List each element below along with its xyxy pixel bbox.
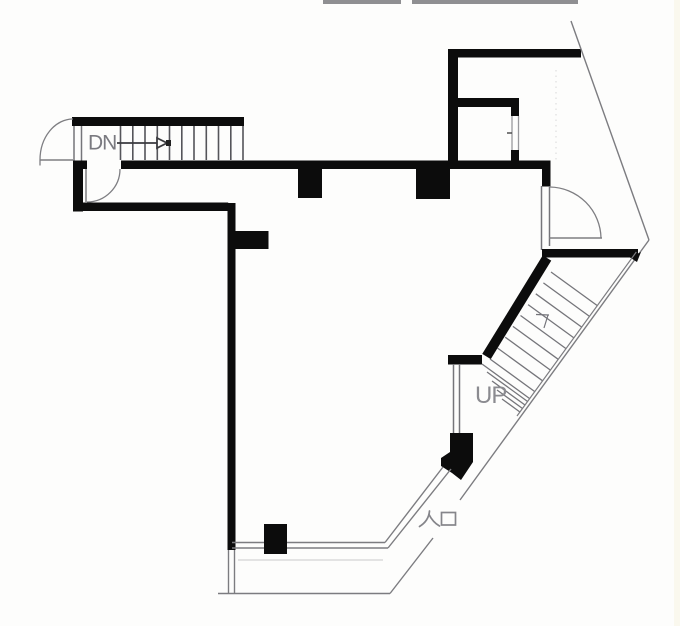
- svg-text:DN: DN: [88, 132, 116, 155]
- svg-text:UP: UP: [475, 382, 506, 409]
